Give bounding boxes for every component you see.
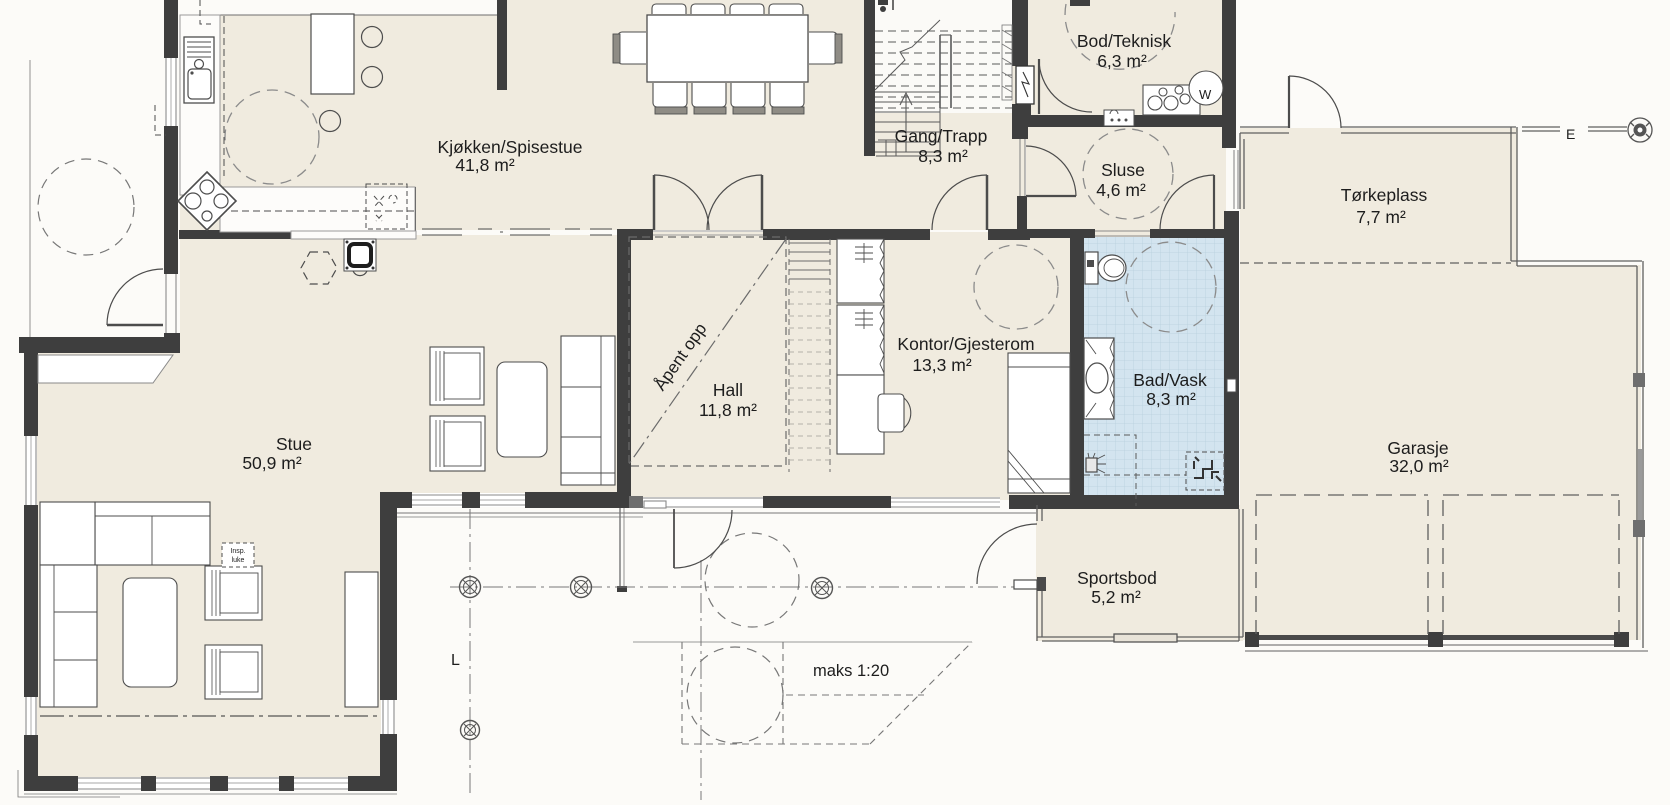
svg-text:W: W: [1199, 87, 1212, 102]
svg-text:Kjøkken/Spisestue: Kjøkken/Spisestue: [438, 137, 583, 157]
svg-text:L: L: [451, 652, 460, 669]
svg-text:41,8 m²: 41,8 m²: [455, 155, 514, 175]
svg-text:4,6 m²: 4,6 m²: [1096, 180, 1146, 200]
svg-text:Gang/Trapp: Gang/Trapp: [895, 126, 988, 146]
svg-text:Stue: Stue: [276, 434, 312, 454]
svg-text:E: E: [1566, 126, 1575, 142]
svg-text:32,0 m²: 32,0 m²: [1389, 456, 1448, 476]
svg-text:50,9 m²: 50,9 m²: [242, 453, 301, 473]
svg-text:Bod/Teknisk: Bod/Teknisk: [1077, 31, 1172, 51]
svg-text:Tørkeplass: Tørkeplass: [1341, 185, 1428, 205]
svg-text:Bad/Vask: Bad/Vask: [1133, 370, 1207, 390]
svg-text:13,3 m²: 13,3 m²: [912, 355, 971, 375]
svg-text:Sluse: Sluse: [1101, 160, 1145, 180]
svg-text:5,2 m²: 5,2 m²: [1091, 587, 1141, 607]
svg-text:Hall: Hall: [713, 380, 743, 400]
svg-text:Garasje: Garasje: [1387, 438, 1448, 458]
svg-text:luke: luke: [232, 557, 245, 564]
svg-text:Insp.: Insp.: [230, 548, 245, 555]
svg-text:8,3 m²: 8,3 m²: [1146, 389, 1196, 409]
svg-text:11,8 m²: 11,8 m²: [699, 400, 757, 420]
svg-text:6,3 m²: 6,3 m²: [1097, 51, 1147, 71]
svg-text:Kontor/Gjesterom: Kontor/Gjesterom: [897, 334, 1034, 354]
svg-text:maks 1:20: maks 1:20: [813, 662, 889, 680]
svg-text:Sportsbod: Sportsbod: [1077, 568, 1157, 588]
svg-text:8,3 m²: 8,3 m²: [918, 146, 968, 166]
svg-text:7,7 m²: 7,7 m²: [1356, 207, 1406, 227]
